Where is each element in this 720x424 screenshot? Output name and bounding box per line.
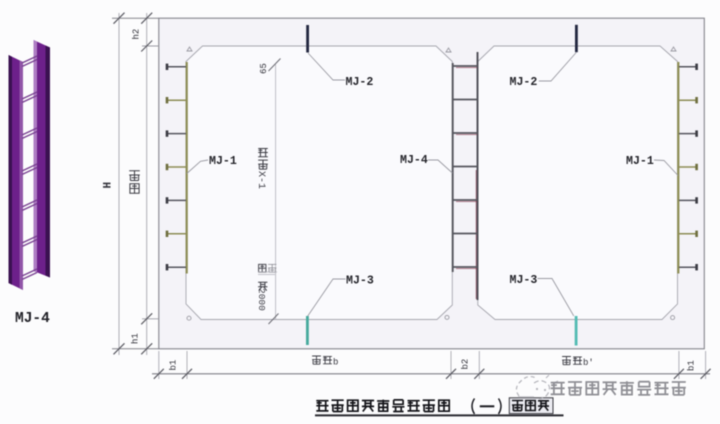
svg-text:MJ-4: MJ-4 [15, 311, 50, 327]
svg-text:2000: 2000 [256, 288, 267, 311]
svg-text:X-1: X-1 [255, 171, 266, 189]
svg-text:MJ-4: MJ-4 [400, 154, 428, 167]
svg-text:H: H [103, 182, 115, 189]
svg-text:b': b' [583, 358, 594, 368]
svg-text:MJ-3: MJ-3 [346, 275, 374, 288]
svg-text:MJ-2: MJ-2 [510, 76, 538, 89]
svg-text:h2: h2 [132, 29, 142, 40]
svg-text:b2: b2 [461, 359, 471, 370]
svg-text:MJ-1: MJ-1 [209, 155, 237, 168]
svg-text:b1: b1 [169, 360, 179, 371]
svg-text:h1: h1 [131, 333, 141, 344]
svg-text:b1: b1 [687, 360, 697, 371]
svg-text:b: b [333, 358, 338, 368]
svg-text:MJ-2: MJ-2 [346, 76, 374, 89]
svg-text:MJ-1: MJ-1 [626, 155, 654, 168]
svg-text:65: 65 [259, 63, 269, 74]
svg-text:MJ-3: MJ-3 [510, 274, 538, 287]
